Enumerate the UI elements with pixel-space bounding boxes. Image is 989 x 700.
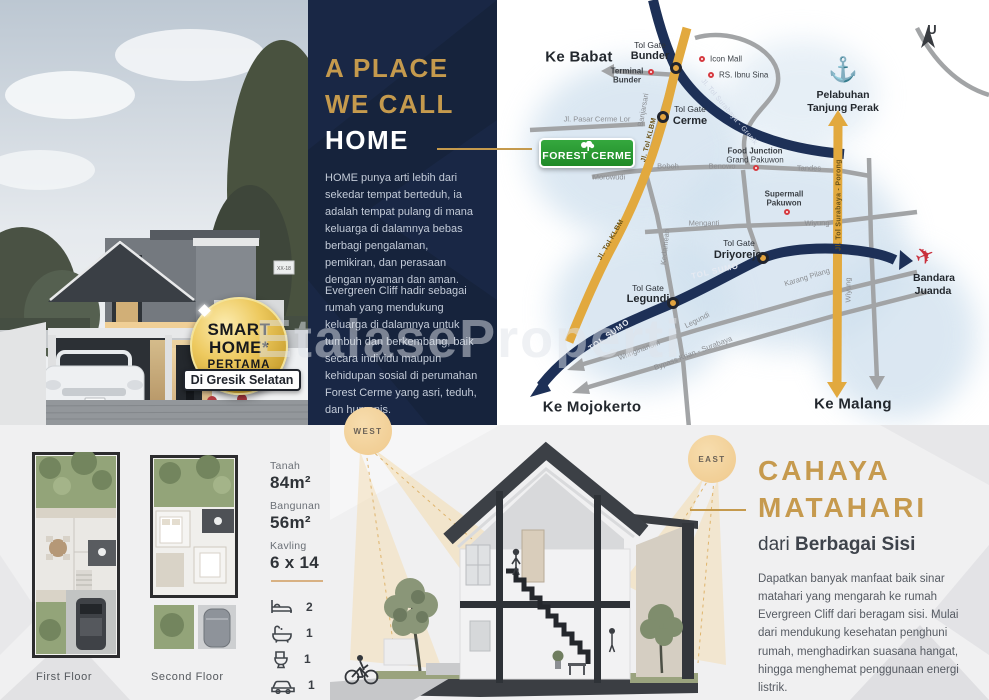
sunlight-subtitle-regular: dari — [758, 534, 790, 555]
map-label: Wiyung — [844, 277, 853, 302]
map-label: Jl. Tol Surabaya - Gresik — [699, 78, 758, 147]
map-label: Menganti — [689, 219, 720, 228]
map-label: RS. Ibnu Sina — [719, 71, 768, 80]
map-label: Tol Gate — [723, 238, 755, 248]
feature-carport: 1 — [270, 672, 350, 698]
spec-label-tanah: Tanah — [270, 460, 350, 472]
specs-divider — [271, 580, 323, 582]
harbor-anchor-icon: ⚓ — [828, 56, 858, 85]
location-map: Ke BabatKe MojokertoKe MalangTol GateBun… — [497, 0, 989, 430]
map-label: Bunder — [613, 76, 641, 85]
map-label: Morowudi — [593, 173, 626, 182]
map-label: Tol Gate — [674, 104, 706, 114]
forest-cerme-logo: FOREST CERME — [539, 138, 635, 168]
map-labels: Ke BabatKe MojokertoKe MalangTol GateBun… — [497, 0, 989, 430]
forest-cerme-logo-text: FOREST CERME — [542, 150, 631, 162]
first-floor-plan — [32, 452, 120, 658]
spec-value-tanah: 84m² — [270, 473, 350, 493]
house-number: XX-18 — [277, 266, 291, 272]
intro-paragraph-1: HOME punya arti lebih dari sekedar tempa… — [325, 170, 480, 289]
intro-title-line3: HOME — [325, 122, 454, 158]
feature-toilet: 1 — [270, 646, 350, 672]
sunlight-paragraph: Dapatkan banyak manfaat baik sinar matah… — [758, 570, 978, 697]
second-floor-plan — [150, 455, 240, 651]
carport-count: 1 — [308, 678, 315, 692]
map-label: Jl. Pasar Cerme Lor — [564, 115, 631, 124]
map-label: Banjarsari — [636, 93, 651, 128]
map-label: Juanda — [915, 285, 952, 297]
intro-panel: A PLACE WE CALL HOME HOME punya arti leb… — [308, 0, 497, 425]
intro-title-line2: WE CALL — [325, 86, 454, 122]
tree-icon — [579, 141, 595, 151]
compass: U — [917, 24, 947, 36]
intro-title-line1: A PLACE — [325, 50, 454, 86]
brochure-page: XX-18 SMART HOME* PERTAMA Di Gresik Sela… — [0, 0, 989, 700]
map-label: Wiyung — [804, 219, 829, 228]
map-label: Legundi — [627, 293, 670, 305]
map-label: Legundi — [683, 310, 711, 330]
map-label: Jl. Tol Surabaya - Porong — [836, 159, 843, 250]
map-label: Tol Gate — [634, 40, 666, 50]
map-label: Benowo — [708, 162, 735, 171]
map-label: Ke Mojokerto — [543, 399, 642, 416]
map-label: Icon Mall — [710, 55, 742, 64]
feature-bedrooms: 2 — [270, 594, 350, 620]
map-label: Jl. Tol KLBM — [597, 219, 626, 262]
sunlight-subtitle: dari Berbagai Sisi — [758, 534, 980, 556]
map-label: Ke Malang — [814, 396, 892, 413]
bathtub-icon — [270, 624, 294, 643]
badge-line1: SMART — [208, 321, 271, 339]
bedroom-count: 2 — [306, 600, 313, 614]
map-label: Bandara — [913, 272, 955, 284]
map-label: Boboh — [657, 162, 679, 171]
intro-title: A PLACE WE CALL HOME — [325, 50, 454, 158]
feature-bathtub: 1 — [270, 620, 350, 646]
sun-badge-east: EAST — [688, 435, 736, 483]
map-label: Kedamean — [659, 228, 672, 265]
map-label: Tol Gate — [632, 283, 664, 293]
specs-panel: Tanah 84m² Bangunan 56m² Kavling 6 x 14 … — [270, 460, 350, 698]
sunlight-section: CAHAYA MATAHARI dari Berbagai Sisi Dapat… — [758, 452, 980, 697]
map-label: Bunder — [631, 50, 670, 62]
map-label: Pelabuhan — [816, 89, 869, 101]
map-label: Tanjung Perak — [807, 102, 879, 114]
sun-badge-west: WEST — [344, 407, 392, 455]
sunlight-subtitle-bold: Berbagai Sisi — [795, 534, 915, 555]
house-photo: XX-18 SMART HOME* PERTAMA Di Gresik Sela… — [0, 0, 308, 425]
cahaya-connector-line — [690, 509, 746, 511]
map-label: TOL SUMO — [690, 261, 739, 281]
map-label: Bypass Krian - Surabaya — [653, 334, 734, 372]
spec-value-kavling: 6 x 14 — [270, 553, 350, 573]
map-label: Ke Babat — [545, 49, 612, 66]
car-icon — [270, 676, 296, 694]
spec-label-bangunan: Bangunan — [270, 500, 350, 512]
map-label: Supermall — [765, 190, 804, 199]
intro-paragraph-2: Evergreen Cliff hadir sebagai rumah yang… — [325, 283, 480, 419]
map-label: Food Junction — [727, 147, 782, 156]
map-label: Tandes — [797, 164, 821, 173]
map-label: Terminal — [611, 67, 644, 76]
sunlight-title-line1: CAHAYA — [758, 452, 980, 489]
toilet-count: 1 — [304, 652, 311, 666]
bathtub-count: 1 — [306, 626, 313, 640]
map-label: Karang Pilang — [783, 266, 831, 288]
spec-label-kavling: Kavling — [270, 540, 350, 552]
toilet-icon — [270, 650, 292, 669]
map-label: Wringinanom — [617, 338, 661, 362]
first-floor-label: First Floor — [36, 671, 92, 683]
bed-icon — [270, 598, 294, 616]
sunlight-title-line2: MATAHARI — [758, 489, 980, 526]
map-label: Cerme — [673, 115, 707, 127]
map-label: TOL SUMO — [587, 317, 631, 353]
second-floor-label: Second Floor — [151, 671, 224, 683]
badge-line2: HOME* — [209, 339, 269, 357]
spec-value-bangunan: 56m² — [270, 513, 350, 533]
title-connector-line — [437, 148, 532, 150]
map-label: Pakuwon — [766, 199, 801, 208]
map-label: Driyorejo — [714, 249, 762, 261]
badge-banner: Di Gresik Selatan — [183, 369, 301, 391]
north-arrow-icon — [917, 24, 939, 50]
